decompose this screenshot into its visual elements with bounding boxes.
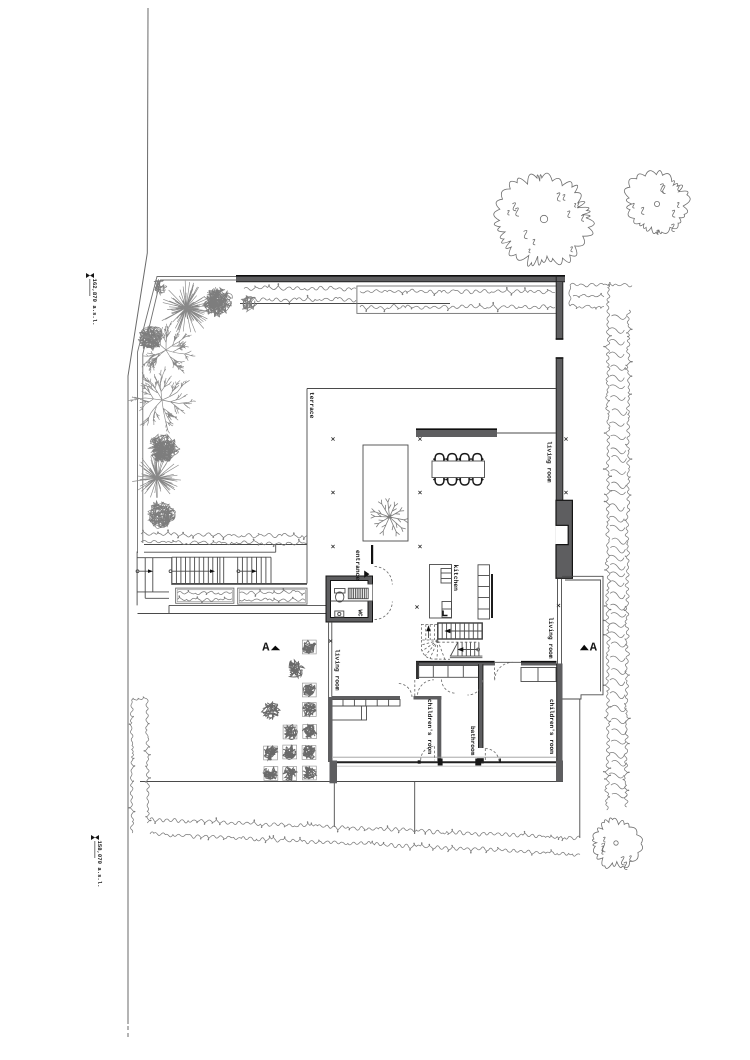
svg-text:terrace: terrace	[308, 392, 315, 419]
svg-text:kitchen: kitchen	[452, 565, 459, 592]
svg-text:WC: WC	[357, 610, 364, 618]
svg-text:children's room: children's room	[548, 699, 555, 754]
svg-text:162,870 a.s.l.: 162,870 a.s.l.	[91, 279, 98, 326]
svg-text:A: A	[262, 640, 270, 654]
svg-text:A: A	[590, 640, 598, 654]
svg-text:living room: living room	[547, 617, 554, 659]
svg-text:living room: living room	[546, 441, 553, 483]
svg-text:bathroom: bathroom	[469, 726, 476, 756]
svg-text:entrance: entrance	[354, 550, 361, 580]
svg-text:children's room: children's room	[426, 699, 433, 754]
svg-text:158,070 a.s.l.: 158,070 a.s.l.	[96, 841, 103, 888]
svg-text:living room: living room	[334, 649, 341, 691]
